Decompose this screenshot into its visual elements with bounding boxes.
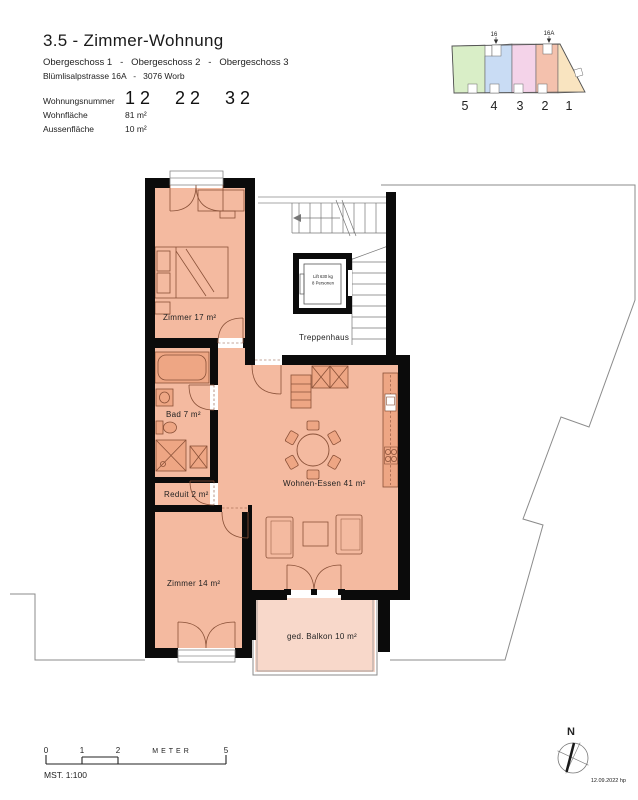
label-zimmer-17: Zimmer 17 m²	[163, 313, 216, 322]
scale-tick-1: 1	[80, 746, 85, 755]
floorplan-page: 3.5 - Zimmer-Wohnung Obergeschoss 1 - Ob…	[0, 0, 638, 800]
scale-bar: 0 1 2 5 METER MST. 1:100	[44, 746, 229, 780]
elevator: Lift 630 kg 8 Personen	[293, 253, 352, 314]
toilet	[156, 421, 163, 434]
label-balkon: ged. Balkon 10 m²	[287, 632, 357, 641]
scale-unit-label: METER	[152, 748, 192, 755]
kitchen	[383, 373, 398, 487]
north-label: N	[567, 726, 575, 738]
floor-plan: Lift 630 kg 8 Personen	[0, 0, 638, 800]
scale-tick-2: 2	[116, 746, 121, 755]
dining-table	[297, 434, 329, 466]
label-wohnen-essen: Wohnen-Essen 41 m²	[283, 479, 366, 488]
scale-text: MST. 1:100	[44, 770, 87, 780]
label-reduit: Reduit 2 m²	[164, 490, 209, 499]
dresser	[291, 375, 311, 408]
scale-tick-0: 0	[44, 746, 49, 755]
lift-label-line2: 8 Personen	[312, 281, 335, 286]
bathtub	[155, 352, 209, 383]
north-arrow-icon: N	[550, 726, 595, 781]
plan-date-note: 12.09.2022 hp	[591, 778, 626, 784]
label-bad: Bad 7 m²	[166, 410, 201, 419]
label-zimmer-14: Zimmer 14 m²	[167, 579, 220, 588]
label-treppenhaus: Treppenhaus	[299, 333, 349, 342]
scale-tick-5: 5	[224, 746, 229, 755]
sink	[156, 389, 173, 406]
lift-label-line1: Lift 630 kg	[313, 274, 333, 279]
